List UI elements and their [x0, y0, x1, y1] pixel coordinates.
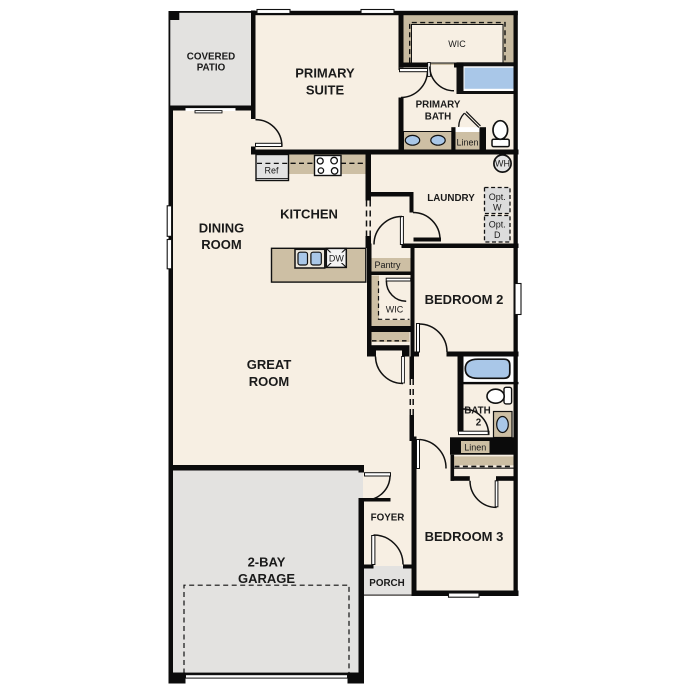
svg-text:GARAGE: GARAGE: [238, 571, 295, 586]
svg-text:D: D: [494, 230, 501, 240]
svg-text:LAUNDRY: LAUNDRY: [427, 193, 475, 204]
svg-text:WIC: WIC: [386, 305, 404, 315]
svg-text:Linen: Linen: [464, 443, 486, 453]
svg-text:Pantry: Pantry: [374, 260, 401, 270]
svg-text:Opt.: Opt.: [489, 192, 506, 202]
svg-text:BEDROOM 3: BEDROOM 3: [425, 529, 504, 544]
svg-text:BATH: BATH: [464, 406, 490, 417]
svg-text:WIC: WIC: [448, 39, 466, 49]
svg-text:PATIO: PATIO: [197, 63, 226, 74]
svg-text:Linen: Linen: [456, 137, 478, 147]
svg-text:KITCHEN: KITCHEN: [280, 207, 338, 222]
svg-text:FOYER: FOYER: [371, 513, 405, 524]
svg-text:SUITE: SUITE: [306, 83, 345, 98]
svg-text:PRIMARY: PRIMARY: [416, 100, 461, 111]
svg-text:2-BAY: 2-BAY: [248, 555, 286, 570]
svg-text:W: W: [493, 203, 502, 213]
svg-text:DINING: DINING: [199, 221, 245, 236]
svg-text:Ref: Ref: [264, 166, 279, 176]
svg-text:2: 2: [476, 418, 482, 429]
svg-text:PORCH: PORCH: [369, 578, 404, 589]
svg-text:ROOM: ROOM: [249, 374, 289, 389]
svg-text:Opt.: Opt.: [489, 220, 506, 230]
svg-text:GREAT: GREAT: [247, 357, 292, 372]
svg-text:DW: DW: [329, 254, 344, 264]
svg-text:COVERED: COVERED: [187, 52, 235, 63]
svg-text:BEDROOM 2: BEDROOM 2: [425, 292, 504, 307]
svg-text:PRIMARY: PRIMARY: [295, 66, 355, 81]
svg-text:WH: WH: [495, 159, 510, 169]
svg-text:BATH: BATH: [425, 112, 451, 123]
svg-text:ROOM: ROOM: [201, 237, 241, 252]
